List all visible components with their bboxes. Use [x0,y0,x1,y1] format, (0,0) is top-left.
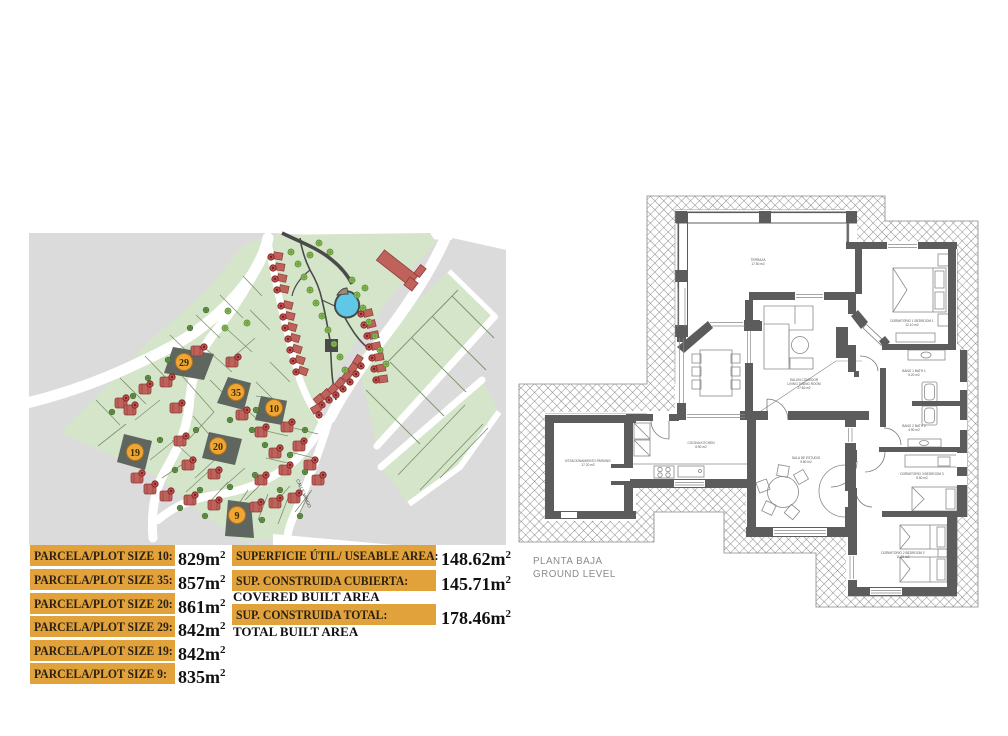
svg-text:5.20 m2: 5.20 m2 [908,373,920,377]
svg-text:LIVING DINING ROOM: LIVING DINING ROOM [787,382,821,386]
svg-text:8.90 m2: 8.90 m2 [695,445,707,449]
svg-text:20: 20 [213,442,223,453]
svg-text:29: 29 [179,358,189,369]
svg-text:9: 9 [235,511,240,522]
svg-text:9.80 m2: 9.80 m2 [800,460,812,464]
svg-text:COCINA KITCHEN: COCINA KITCHEN [687,441,715,445]
svg-text:11.20 m2: 11.20 m2 [896,555,909,559]
svg-text:8.50 m2: 8.50 m2 [916,476,928,480]
svg-text:BANO 2 BATH 2: BANO 2 BATH 2 [902,424,926,428]
svg-text:17.20 m2: 17.20 m2 [581,463,595,467]
svg-text:17.50 m2: 17.50 m2 [751,262,765,266]
svg-text:SALA DE ESTUDIO: SALA DE ESTUDIO [792,456,821,460]
svg-text:DORMITORIO 3 BEDROOM 3: DORMITORIO 3 BEDROOM 3 [900,472,944,476]
svg-text:ESTACIONAMIENTO PARKING: ESTACIONAMIENTO PARKING [565,459,611,463]
svg-text:19: 19 [130,448,140,459]
svg-text:27.60 m2: 27.60 m2 [797,386,811,390]
svg-text:DORMITORIO 1 BEDROOM 1: DORMITORIO 1 BEDROOM 1 [890,319,934,323]
svg-text:DORMITORIO 2 BEDROOM 2: DORMITORIO 2 BEDROOM 2 [881,551,925,555]
svg-text:10: 10 [269,404,279,415]
svg-text:35: 35 [231,388,241,399]
svg-text:4.90 m2: 4.90 m2 [908,428,920,432]
svg-text:12.10 m2: 12.10 m2 [905,323,919,327]
svg-text:TERRAZA: TERRAZA [751,258,767,262]
svg-text:SALON COMEDOR: SALON COMEDOR [790,378,819,382]
svg-text:BANO 1 BATH 1: BANO 1 BATH 1 [902,369,926,373]
